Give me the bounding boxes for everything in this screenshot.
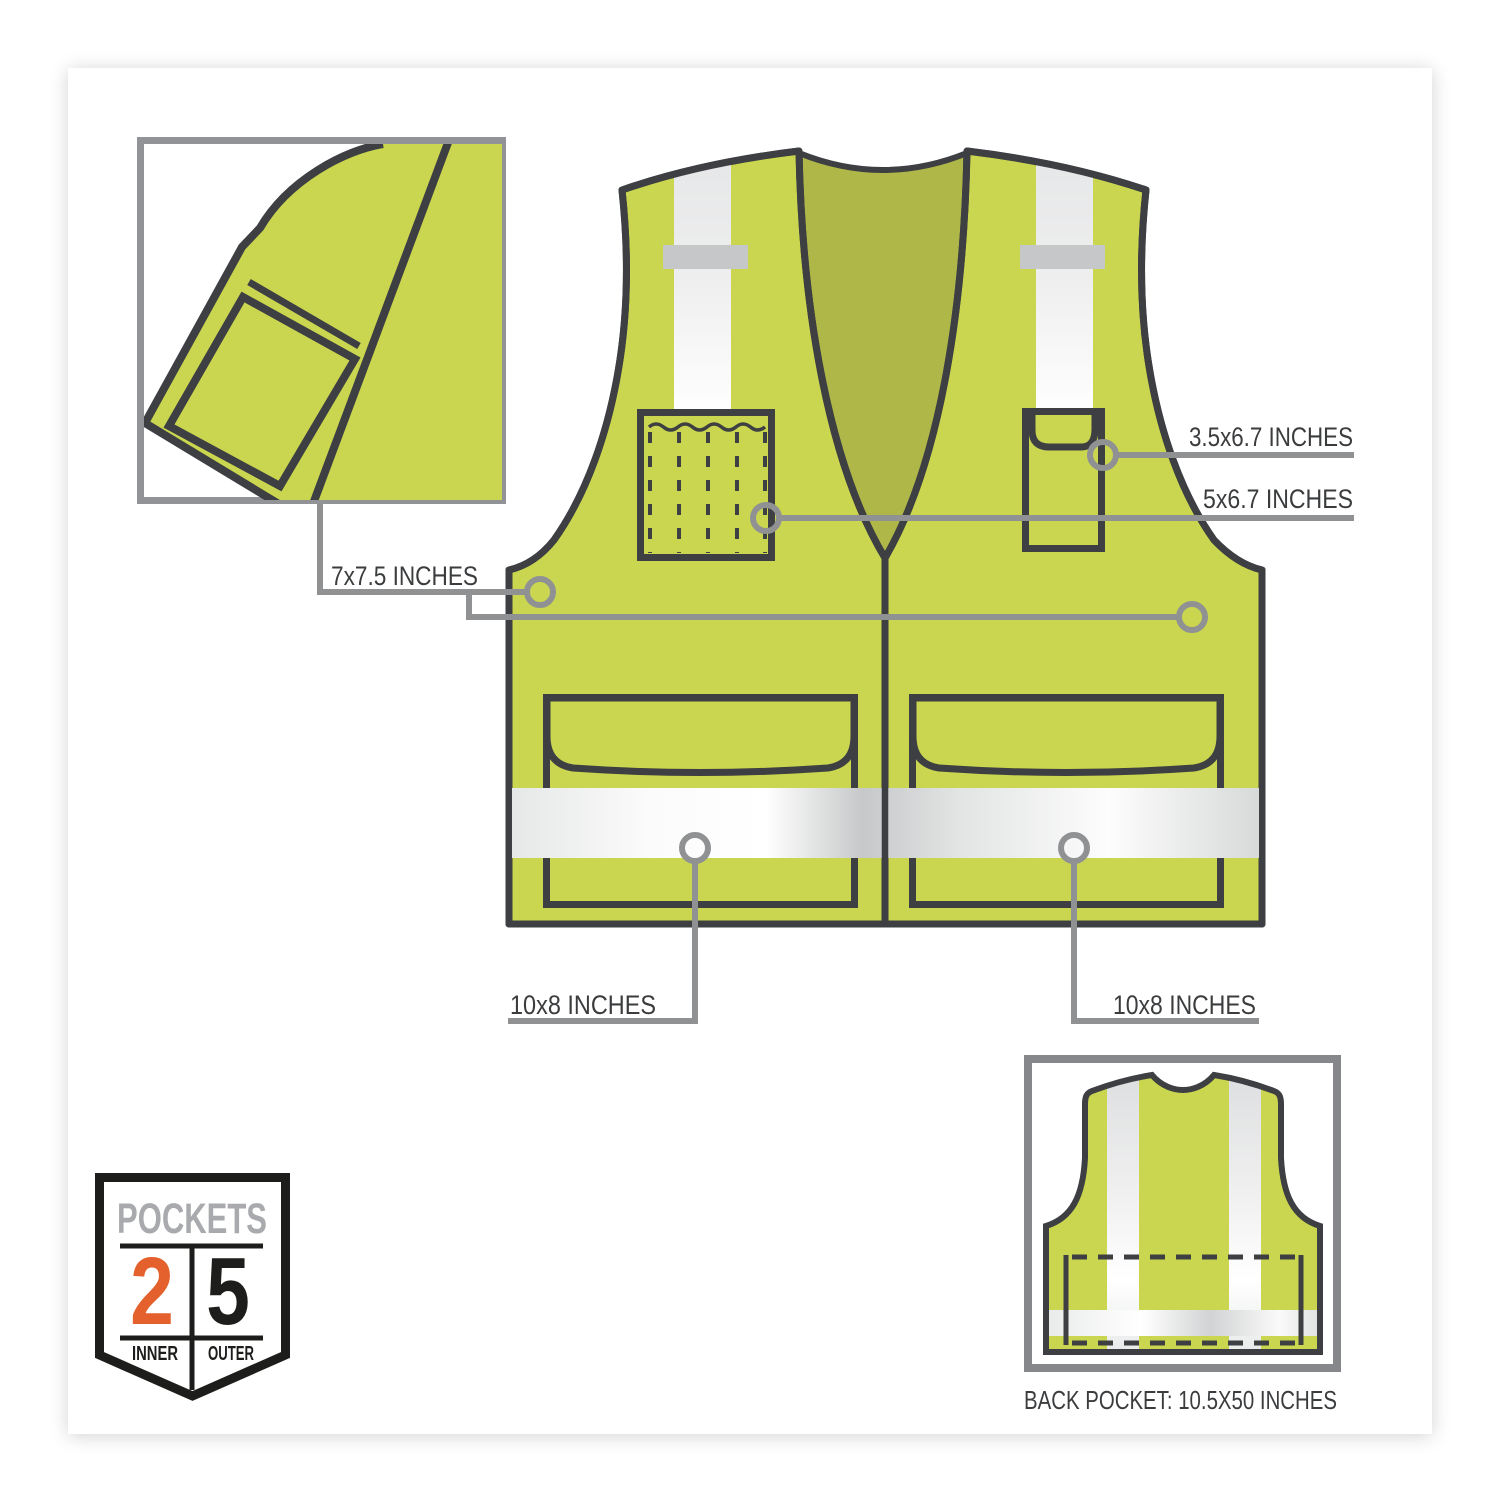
svg-text:10x8 INCHES: 10x8 INCHES	[510, 990, 656, 1020]
svg-text:OUTER: OUTER	[208, 1343, 254, 1365]
svg-text:10x8 INCHES: 10x8 INCHES	[1113, 990, 1256, 1020]
svg-text:5x6.7 INCHES: 5x6.7 INCHES	[1203, 484, 1353, 514]
svg-text:BACK POCKET: 10.5X50 INCHES: BACK POCKET: 10.5X50 INCHES	[1024, 1385, 1337, 1415]
svg-text:POCKETS: POCKETS	[117, 1195, 267, 1243]
svg-text:INNER: INNER	[132, 1343, 178, 1365]
svg-text:2: 2	[130, 1238, 174, 1345]
svg-text:5: 5	[206, 1238, 250, 1345]
svg-text:3.5x6.7 INCHES: 3.5x6.7 INCHES	[1189, 422, 1353, 452]
svg-text:7x7.5 INCHES: 7x7.5 INCHES	[331, 561, 478, 591]
